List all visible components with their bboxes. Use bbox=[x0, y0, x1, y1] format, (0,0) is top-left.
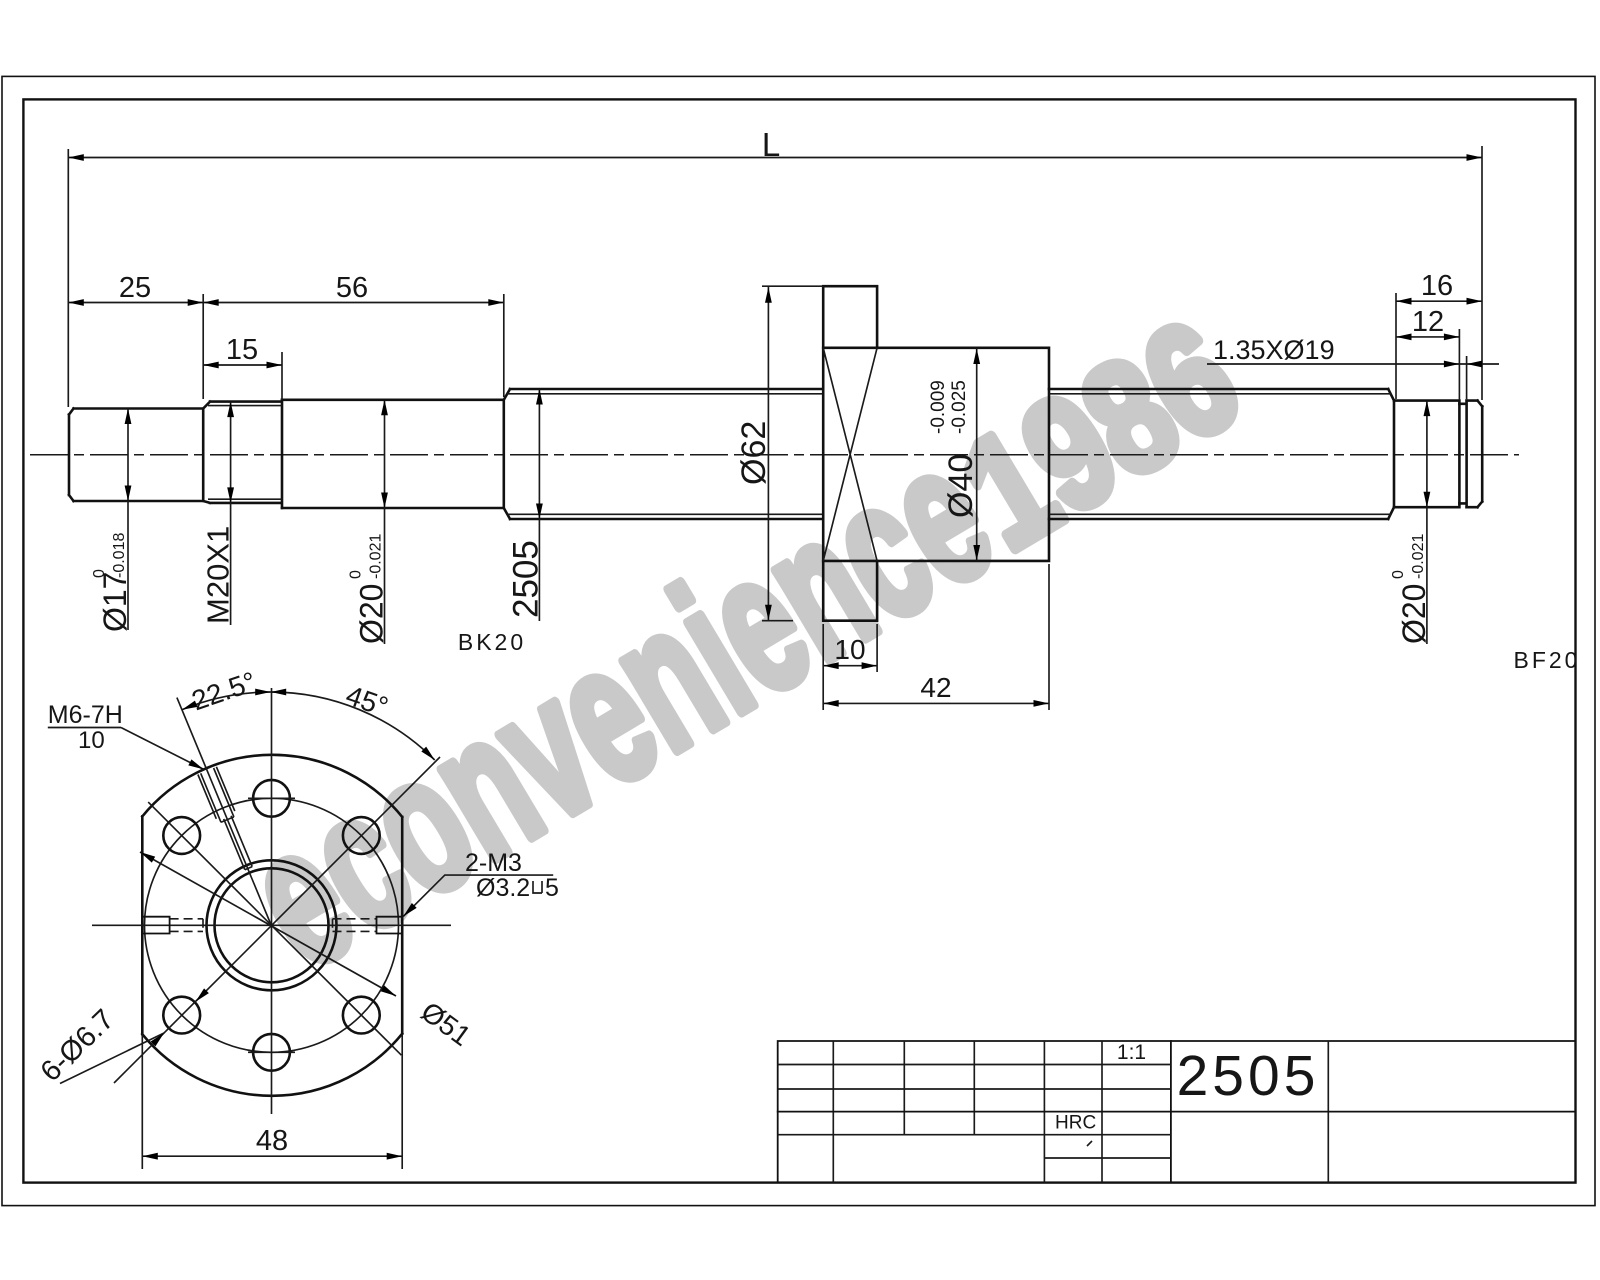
svg-text:M6-7H: M6-7H bbox=[48, 701, 123, 729]
svg-text:12: 12 bbox=[1412, 306, 1444, 338]
svg-text:48: 48 bbox=[256, 1125, 288, 1157]
svg-text:Ø20: Ø20 bbox=[354, 584, 390, 644]
svg-text:42: 42 bbox=[920, 672, 951, 703]
svg-text:56: 56 bbox=[336, 272, 368, 304]
svg-text:-0.021: -0.021 bbox=[368, 534, 385, 579]
svg-text:Ø20: Ø20 bbox=[1396, 584, 1432, 644]
svg-text:2505: 2505 bbox=[1177, 1044, 1320, 1108]
svg-text:Ø3.2: Ø3.2 bbox=[476, 874, 530, 902]
svg-text:10: 10 bbox=[78, 727, 105, 754]
svg-text:1.35XØ19: 1.35XØ19 bbox=[1213, 335, 1335, 365]
svg-text:BF20: BF20 bbox=[1514, 647, 1581, 673]
svg-text:15: 15 bbox=[226, 334, 258, 366]
svg-text:25: 25 bbox=[119, 272, 151, 304]
svg-text:L: L bbox=[762, 126, 780, 163]
svg-text:M20X1: M20X1 bbox=[201, 526, 236, 624]
svg-text:-0.021: -0.021 bbox=[1410, 534, 1427, 579]
svg-text:-0.018: -0.018 bbox=[111, 533, 128, 578]
svg-text:Ø62: Ø62 bbox=[735, 421, 773, 485]
svg-text:1:1: 1:1 bbox=[1117, 1041, 1146, 1064]
svg-text:0: 0 bbox=[348, 570, 365, 579]
svg-text:BK20: BK20 bbox=[458, 629, 526, 655]
svg-text:-0.009: -0.009 bbox=[928, 380, 949, 434]
svg-text:2-M3: 2-M3 bbox=[465, 849, 522, 877]
svg-text:16: 16 bbox=[1421, 270, 1453, 302]
svg-text:0: 0 bbox=[91, 569, 108, 578]
svg-text:2505: 2505 bbox=[506, 540, 545, 618]
svg-text:Ø17: Ø17 bbox=[97, 572, 133, 632]
svg-text:Ø40: Ø40 bbox=[942, 454, 980, 518]
svg-text:-0.025: -0.025 bbox=[949, 380, 970, 434]
svg-text:0: 0 bbox=[1390, 570, 1407, 579]
svg-text:10: 10 bbox=[834, 634, 865, 665]
svg-text:HRC: HRC bbox=[1055, 1113, 1096, 1134]
svg-text:5: 5 bbox=[545, 874, 559, 902]
